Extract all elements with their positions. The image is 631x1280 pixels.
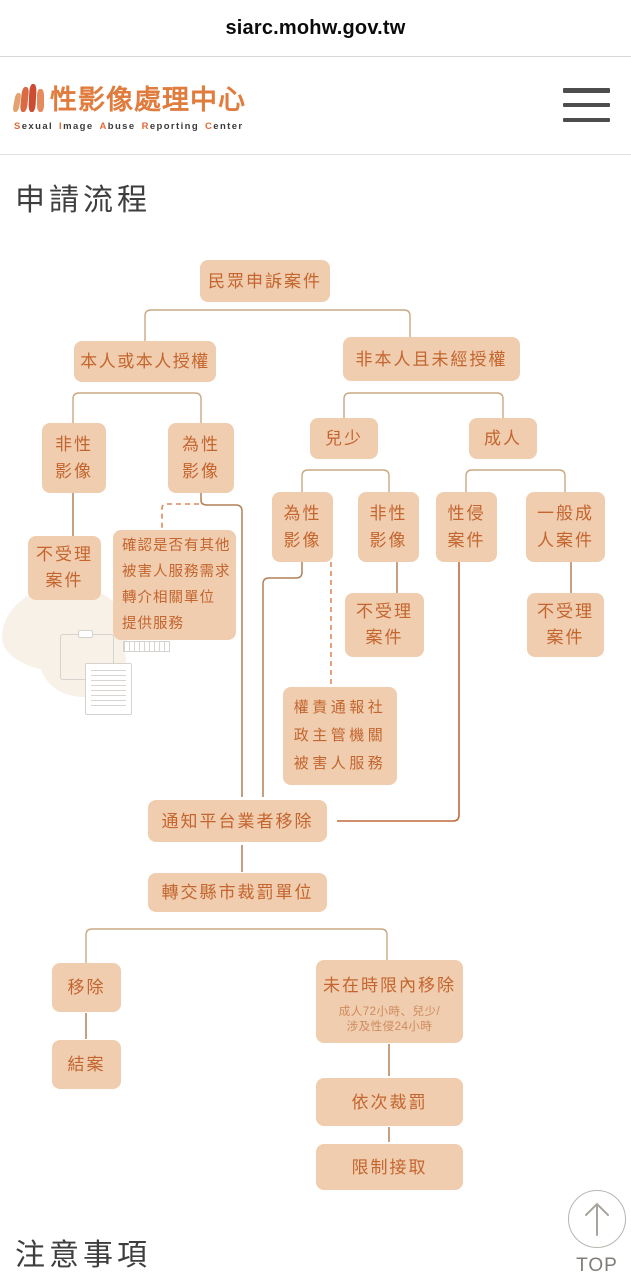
flow-node-sequential-fine: 依次裁罰: [316, 1078, 463, 1126]
flow-node-rejected-2: 不受理 案件: [345, 593, 424, 657]
flow-node-unauthorized: 非本人且未經授權: [343, 337, 520, 381]
flow-node-case-closed: 結案: [52, 1040, 121, 1089]
url-text: siarc.mohw.gov.tw: [225, 17, 405, 40]
site-subtitle: Sexual Image Abuse Reporting Center: [14, 121, 246, 132]
site-title: 性影像處理中心: [50, 87, 246, 114]
site-header: 性影像處理中心 Sexual Image Abuse Reporting Cen…: [0, 58, 631, 155]
arrow-up-icon: [568, 1190, 626, 1248]
flow-node-auth-non-sexual: 非性 影像: [42, 423, 106, 493]
logo-leaves-icon: [14, 82, 46, 114]
flow-node-report-social: 權責通報社 政主管機關 被害人服務: [283, 687, 397, 785]
next-section-title: 注意事項: [15, 1230, 151, 1274]
flow-node-authorized: 本人或本人授權: [74, 341, 216, 382]
decor-clipboard-clip-icon: [78, 630, 93, 638]
flow-node-not-removed: 未在時限內移除 成人72小時、兒少/ 涉及性侵24小時: [316, 960, 463, 1043]
flow-node-removed: 移除: [52, 963, 121, 1012]
flow-node-rejected-1: 不受理 案件: [28, 536, 101, 600]
flow-node-rejected-3: 不受理 案件: [527, 593, 604, 657]
flow-node-auth-sexual: 為性 影像: [168, 423, 234, 493]
flow-node-minor: 兒少: [310, 418, 378, 459]
back-to-top-label: TOP: [568, 1255, 626, 1277]
flow-node-complaint: 民眾申訴案件: [200, 260, 330, 302]
flow-node-restrict-access: 限制接取: [316, 1144, 463, 1190]
flow-node-sexual-assault: 性侵 案件: [436, 492, 497, 562]
flow-node-general-adult: 一般成 人案件: [526, 492, 605, 562]
page-title: 申請流程: [15, 175, 151, 219]
flow-node-notify-platform: 通知平台業者移除: [148, 800, 327, 842]
mobile-browser-screen: siarc.mohw.gov.tw 性影像處理中心 Sexual Image A…: [0, 0, 631, 1280]
flow-node-minor-sexual: 為性 影像: [272, 492, 333, 562]
browser-url-bar[interactable]: siarc.mohw.gov.tw: [0, 0, 631, 57]
flow-node-adult: 成人: [469, 418, 537, 459]
flow-node-minor-non-sexual: 非性 影像: [358, 492, 419, 562]
site-logo[interactable]: 性影像處理中心 Sexual Image Abuse Reporting Cen…: [14, 82, 246, 132]
not-removed-label: 未在時限內移除: [323, 972, 456, 999]
decor-ruler-icon: [123, 641, 170, 652]
back-to-top-button[interactable]: TOP: [568, 1190, 626, 1277]
menu-hamburger-icon[interactable]: [563, 88, 610, 122]
not-removed-note: 成人72小時、兒少/ 涉及性侵24小時: [339, 1005, 441, 1035]
flow-node-confirm-services: 確認是否有其他 被害人服務需求 轉介相關單位 提供服務: [113, 530, 236, 640]
decor-checklist-icon: [85, 663, 132, 715]
flow-node-transfer-penalty: 轉交縣市裁罰單位: [148, 873, 327, 912]
